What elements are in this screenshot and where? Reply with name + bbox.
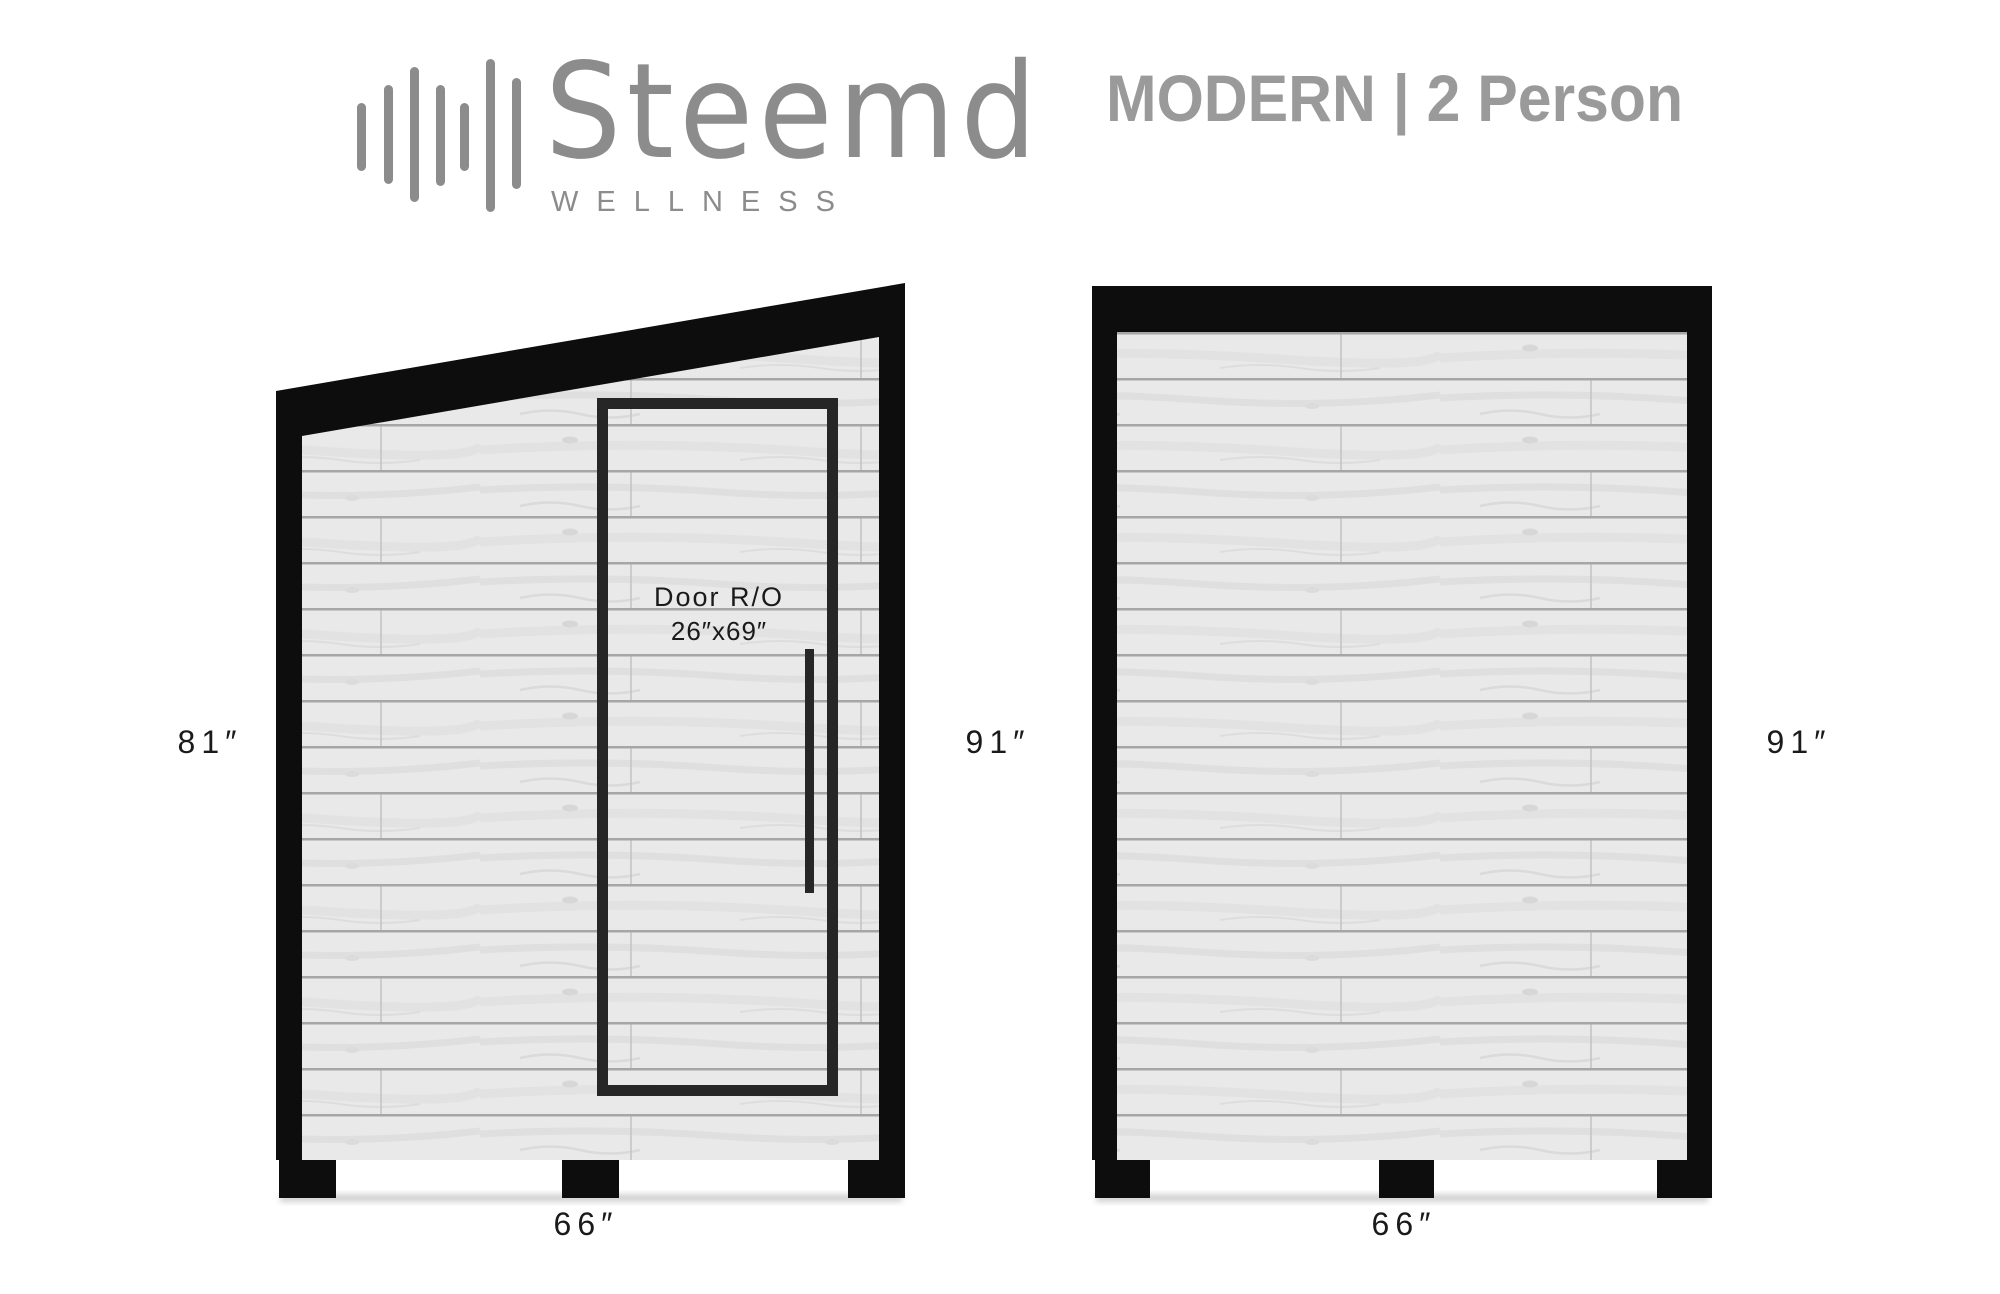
foot (279, 1160, 336, 1198)
foot (1095, 1160, 1150, 1198)
foot (1379, 1160, 1434, 1198)
front-height-label: 91″ (1767, 724, 1832, 760)
side-height-right-label: 91″ (966, 724, 1031, 760)
foot (848, 1160, 905, 1198)
front-width-label: 66″ (1372, 1206, 1437, 1242)
model-title: MODERN | 2 Person (1106, 65, 1683, 131)
side-view-wood-panel (302, 337, 879, 1160)
side-height-left-label: 81″ (178, 724, 243, 760)
foot (562, 1160, 619, 1198)
side-elevation-view: Door R/O 26″x69″ (276, 283, 905, 1202)
front-view-wood-panel (1117, 332, 1687, 1160)
spec-sheet: Door R/O 26″x69″ 81″ 91″ 66″ 91″ 66″ Ste… (0, 0, 2000, 1294)
foot (1657, 1160, 1712, 1198)
brand-tagline: WELLNESS (551, 188, 853, 217)
front-elevation-view (1092, 286, 1712, 1202)
door-label: Door R/O (654, 582, 784, 612)
elevation-drawings: Door R/O 26″x69″ 81″ 91″ 66″ 91″ 66″ (0, 0, 2000, 1294)
door-handle (805, 649, 814, 893)
door-size-label: 26″x69″ (671, 616, 767, 646)
brand-name: Steemd (545, 46, 1042, 178)
soundwave-icon (357, 59, 521, 212)
side-width-label: 66″ (554, 1206, 619, 1242)
